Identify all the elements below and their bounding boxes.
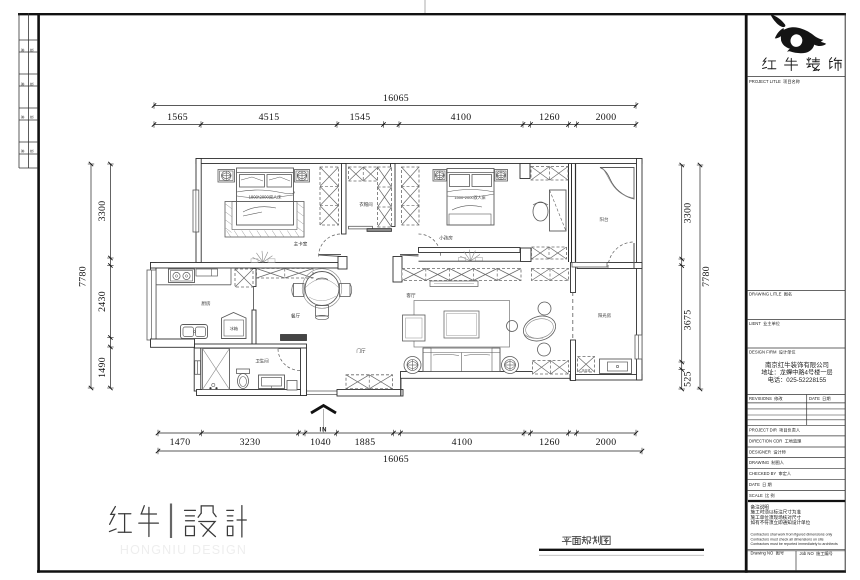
svg-text:3675: 3675 <box>683 310 694 331</box>
svg-text:REVISIONS 修改: REVISIONS 修改 <box>749 395 783 402</box>
svg-text:4100: 4100 <box>451 112 472 123</box>
svg-text:Contractors must check all dim: Contractors must check all dimensions on… <box>751 537 824 541</box>
svg-text:1500*2000双人床: 1500*2000双人床 <box>454 194 485 200</box>
svg-text:阳台: 阳台 <box>600 216 609 223</box>
svg-text:衣帽间: 衣帽间 <box>359 201 372 208</box>
svg-text:PROJECT DIR 项目负责人: PROJECT DIR 项目负责人 <box>749 427 801 434</box>
svg-text:主卡室: 主卡室 <box>294 241 308 248</box>
svg-text:3300: 3300 <box>97 201 108 222</box>
svg-text:地址：龙蟬中路4号楼一层: 地址：龙蟬中路4号楼一层 <box>761 369 833 377</box>
svg-text:HONGNIU DESIGN: HONGNIU DESIGN <box>120 543 247 557</box>
svg-text:1260: 1260 <box>539 437 560 448</box>
svg-text:南京红牛装饰有限公司: 南京红牛装饰有限公司 <box>765 360 829 369</box>
svg-text:7780: 7780 <box>701 266 712 287</box>
svg-text:2000: 2000 <box>596 437 617 448</box>
svg-text:SCALE 比 例: SCALE 比 例 <box>749 492 775 499</box>
svg-text:PROJECT LITLE 项目名称: PROJECT LITLE 项目名称 <box>749 78 800 85</box>
svg-text:客厅: 客厅 <box>406 292 416 299</box>
svg-text:Contractors must be reported i: Contractors must be reported immediately… <box>751 542 838 546</box>
svg-text:LIENT 业主单位: LIENT 业主单位 <box>749 320 780 327</box>
svg-text:卫生间: 卫生间 <box>255 358 268 365</box>
svg-text:如有不符须立即通知设计单位: 如有不符须立即通知设计单位 <box>751 519 811 526</box>
svg-text:厨房: 厨房 <box>201 300 211 307</box>
svg-text:Job NO 施工编号: Job NO 施工编号 <box>800 550 833 557</box>
svg-text:电话：025-52228155: 电话：025-52228155 <box>768 376 827 384</box>
svg-text:1885: 1885 <box>355 437 376 448</box>
svg-text:2000: 2000 <box>596 112 617 123</box>
svg-text:DESIGNER 设计师: DESIGNER 设计师 <box>749 448 786 455</box>
svg-text:3230: 3230 <box>240 437 261 448</box>
svg-text:冰箱: 冰箱 <box>230 325 238 332</box>
svg-text:CHECKED BY 审定人: CHECKED BY 审定人 <box>749 470 792 477</box>
svg-text:1800*2000双人床: 1800*2000双人床 <box>249 194 283 201</box>
svg-text:DRAWING LITLE 图名: DRAWING LITLE 图名 <box>749 291 792 298</box>
svg-text:1260: 1260 <box>539 112 560 123</box>
svg-text:DIRECTION CDR 工地监理: DIRECTION CDR 工地监理 <box>749 438 802 444</box>
svg-text:Contractors shal work from fig: Contractors shal work from figured dimen… <box>751 533 833 537</box>
svg-text:4515: 4515 <box>259 112 280 123</box>
svg-text:2430: 2430 <box>97 291 108 312</box>
svg-text:洗衣机: 洗衣机 <box>581 368 590 373</box>
svg-text:16065: 16065 <box>383 454 409 465</box>
svg-text:门厅: 门厅 <box>356 348 366 355</box>
svg-text:餐厅: 餐厅 <box>291 313 301 320</box>
svg-text:16065: 16065 <box>383 93 409 104</box>
svg-text:DRAWING 制图人: DRAWING 制图人 <box>749 459 785 466</box>
svg-text:525: 525 <box>683 371 694 387</box>
svg-text:1565: 1565 <box>167 112 188 123</box>
svg-text:小孩房: 小孩房 <box>439 235 453 242</box>
svg-text:4100: 4100 <box>452 437 473 448</box>
svg-text:7780: 7780 <box>78 266 89 287</box>
svg-text:1040: 1040 <box>310 437 331 448</box>
svg-text:1490: 1490 <box>97 357 108 378</box>
svg-text:1545: 1545 <box>350 112 371 123</box>
svg-text:3300: 3300 <box>683 203 694 224</box>
svg-text:1470: 1470 <box>170 437 191 448</box>
svg-text:DESIGN FIRM 设计单位: DESIGN FIRM 设计单位 <box>749 349 796 356</box>
svg-text:IN: IN <box>320 428 328 434</box>
svg-text:阳光房: 阳光房 <box>598 312 612 319</box>
